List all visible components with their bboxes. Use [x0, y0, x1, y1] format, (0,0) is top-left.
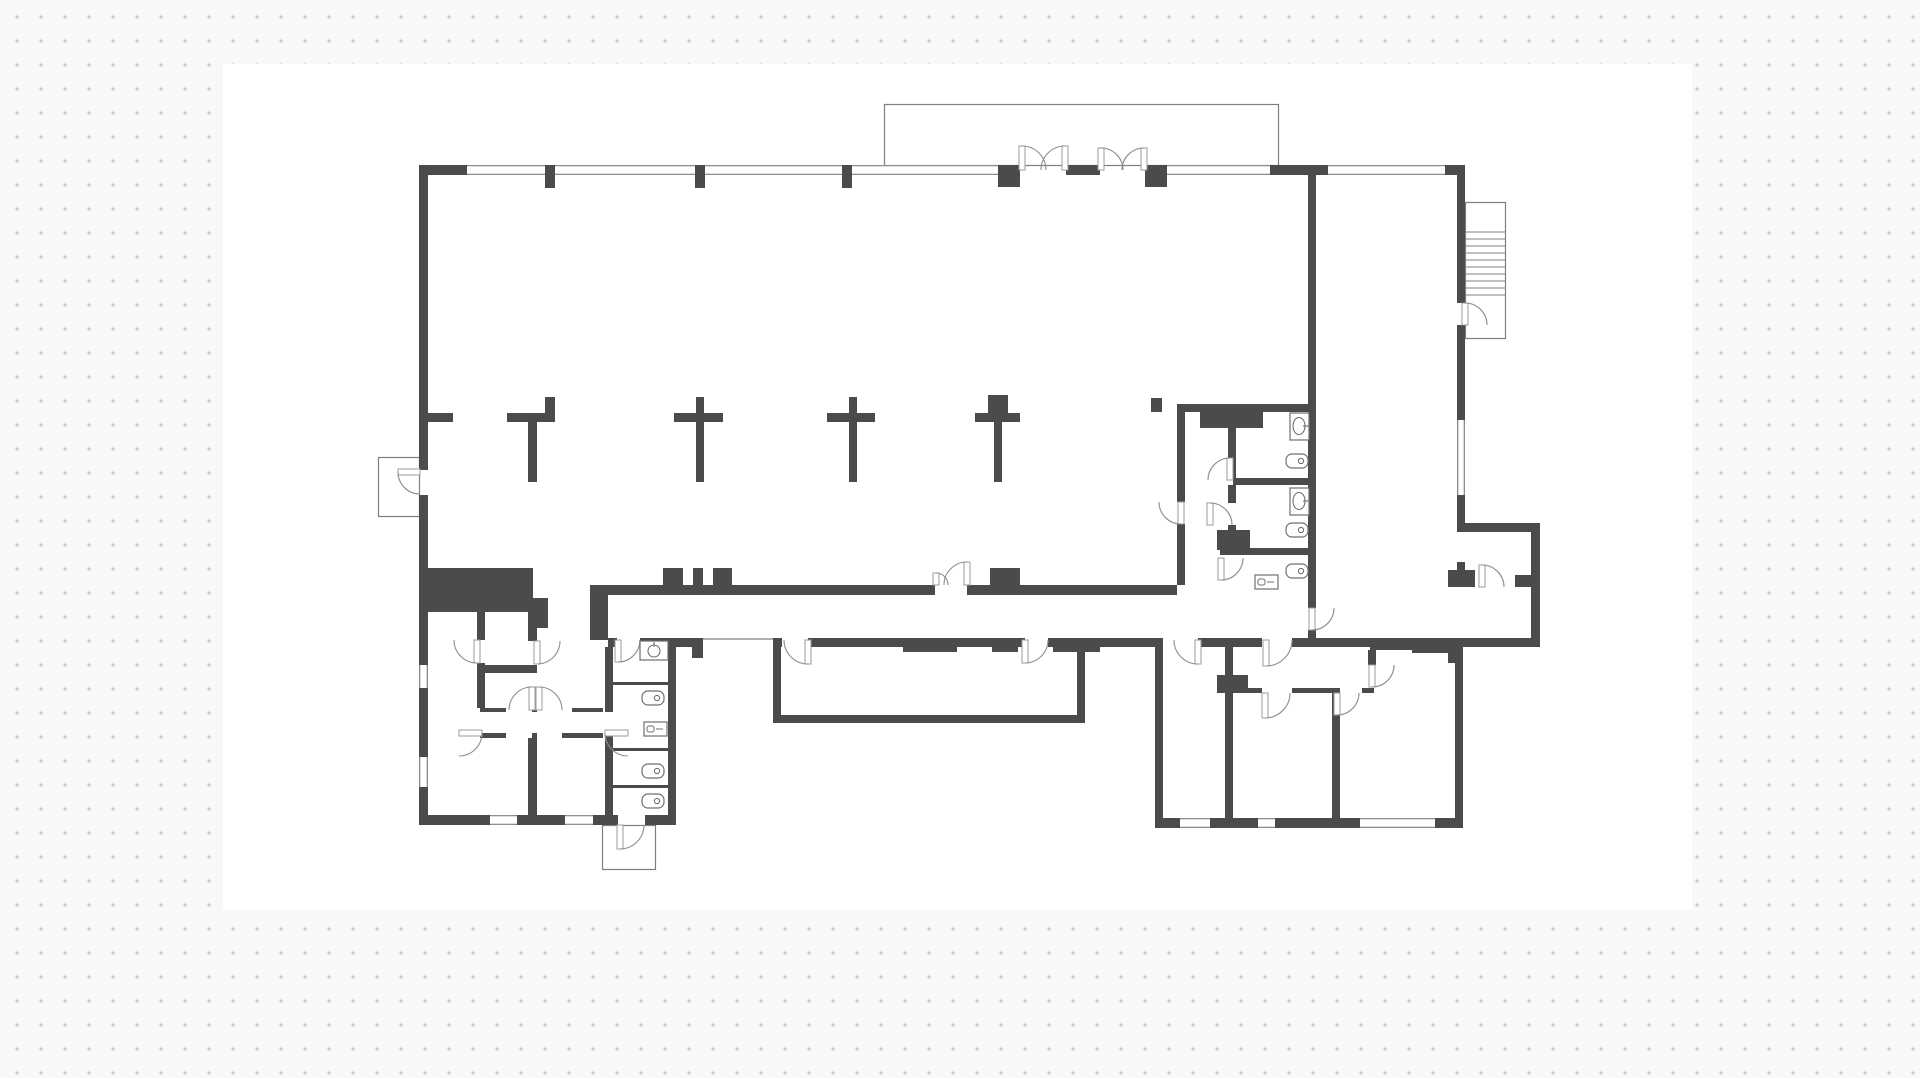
wall [1145, 165, 1167, 187]
wall [645, 815, 676, 825]
wall [590, 585, 608, 640]
wall [773, 715, 1085, 723]
door-leaf [1263, 640, 1269, 666]
wall [545, 397, 555, 413]
door-leaf [1309, 608, 1315, 630]
vestibule-bump-out [885, 105, 1279, 166]
wall [477, 665, 537, 673]
wall [674, 413, 723, 422]
door-leaf [536, 687, 542, 710]
urinal-icon [1255, 575, 1278, 589]
wall [1233, 478, 1316, 485]
door-leaf [1462, 303, 1468, 325]
wall [419, 165, 428, 470]
wall [695, 165, 705, 188]
door-leaf [534, 641, 540, 664]
window-glass [419, 665, 428, 688]
wall [808, 638, 903, 647]
left-entry-porch [379, 458, 420, 517]
wall [613, 785, 668, 788]
plan-sheet [223, 64, 1692, 910]
wall [532, 733, 537, 738]
wall [507, 413, 555, 422]
sink-icon [1290, 413, 1310, 440]
wall [994, 422, 1002, 482]
wall [1457, 523, 1540, 532]
door-leaf [605, 730, 628, 736]
toilet-icon [1286, 454, 1308, 468]
window-glass [467, 165, 545, 175]
wall [696, 422, 704, 482]
wall [1270, 165, 1328, 175]
wall [1457, 325, 1465, 420]
door-leaf [459, 730, 482, 736]
wall [1155, 640, 1163, 818]
toilet-icon [642, 794, 664, 808]
door-leaf [617, 825, 623, 849]
door-leaf [1062, 146, 1068, 170]
wall [1155, 818, 1180, 828]
window-glass [555, 165, 695, 175]
wall [1048, 638, 1053, 647]
wall [419, 815, 490, 825]
wall [842, 165, 852, 188]
wall [1412, 648, 1448, 653]
wall [605, 647, 613, 712]
door-leaf [1019, 146, 1025, 170]
door-leaf [964, 562, 970, 585]
wall [988, 395, 1008, 413]
wall [957, 638, 992, 647]
door-leaf [1207, 503, 1213, 525]
wall [1457, 562, 1465, 570]
wall [477, 612, 485, 640]
door-leaf [615, 640, 621, 662]
wall [773, 647, 781, 723]
wall [1292, 638, 1370, 647]
wall [613, 682, 668, 685]
wall [903, 638, 957, 652]
wall [1217, 675, 1248, 693]
wall [1275, 818, 1360, 828]
wall [528, 738, 537, 815]
sink-icon [1290, 488, 1310, 515]
wall [1210, 818, 1258, 828]
wall [419, 688, 428, 757]
window-glass [1167, 165, 1270, 175]
wall [1151, 398, 1162, 412]
wall [1308, 175, 1316, 404]
window-glass [490, 815, 517, 825]
wall [696, 397, 704, 413]
wall [1463, 638, 1540, 647]
wall [1225, 640, 1233, 676]
door-leaf [933, 573, 939, 585]
wall [517, 815, 565, 825]
wall [1177, 404, 1185, 502]
wall [967, 585, 1177, 595]
wall [1457, 495, 1465, 523]
wall [1308, 630, 1316, 638]
wall [528, 612, 537, 641]
window-glass [1328, 165, 1445, 175]
window-glass [1360, 818, 1435, 828]
window-glass [852, 165, 998, 175]
door-leaf [1178, 502, 1184, 524]
door-leaf [1098, 148, 1104, 170]
door-leaf [1195, 640, 1201, 664]
wall [773, 638, 782, 647]
wall [713, 568, 732, 585]
toilet-icon [642, 691, 664, 705]
window-glass [1180, 818, 1210, 828]
door-leaf [805, 640, 811, 664]
floor-plan-drawing [0, 0, 1920, 1078]
urinal-icon [644, 722, 667, 736]
door-leaf [529, 687, 535, 710]
wall [1448, 638, 1463, 663]
wall [419, 413, 453, 422]
door-leaf [398, 469, 420, 475]
door-leaf [1141, 148, 1147, 170]
wall [1177, 524, 1185, 585]
wall [1225, 693, 1233, 818]
wall [562, 733, 603, 738]
wall [545, 165, 555, 188]
wall [1448, 570, 1475, 587]
window-glass [565, 815, 593, 825]
door-leaf [1218, 558, 1224, 580]
wall [1100, 638, 1163, 647]
door-leaf [1479, 565, 1485, 587]
toilet-icon [1286, 523, 1308, 537]
wall [1412, 638, 1448, 648]
wall [593, 815, 618, 825]
design-canvas[interactable] [0, 0, 1920, 1078]
washbasin-icon [640, 641, 668, 660]
door-leaf [1022, 640, 1028, 663]
window-glass [705, 165, 842, 175]
wall [992, 638, 1018, 652]
wall [692, 638, 703, 658]
wall [1053, 638, 1100, 652]
wall [1308, 595, 1316, 608]
wall [849, 397, 857, 413]
door-leaf [1369, 665, 1375, 687]
wall [663, 568, 683, 585]
wall [849, 422, 857, 482]
wall [1077, 647, 1085, 723]
wall [1435, 818, 1463, 828]
wall [1066, 165, 1100, 175]
door-leaf [1334, 693, 1340, 715]
wall [1457, 165, 1465, 303]
door-leaf [1262, 693, 1268, 718]
wall [975, 413, 1020, 422]
wall [1515, 575, 1540, 587]
toilet-icon [642, 764, 664, 778]
wall [480, 708, 506, 712]
door-leaf [1227, 458, 1233, 480]
wall [1370, 638, 1412, 650]
wall [428, 568, 533, 612]
door-leaf [474, 640, 480, 663]
wall [990, 568, 1020, 585]
wall [528, 422, 537, 482]
toilet-icon [1286, 564, 1308, 578]
wall [608, 585, 935, 595]
wall [572, 708, 603, 712]
window-glass [1258, 818, 1275, 828]
wall [693, 568, 703, 585]
wall [419, 495, 428, 665]
wall [998, 165, 1020, 187]
wall [827, 413, 875, 422]
wall [480, 733, 506, 738]
window-glass [419, 757, 428, 787]
wall [1217, 530, 1250, 550]
wall [1228, 485, 1236, 503]
wall [1362, 688, 1374, 693]
wall [1368, 650, 1376, 665]
wall [613, 748, 668, 751]
wall [1455, 663, 1463, 818]
wall [668, 647, 676, 815]
wall [1248, 688, 1262, 693]
